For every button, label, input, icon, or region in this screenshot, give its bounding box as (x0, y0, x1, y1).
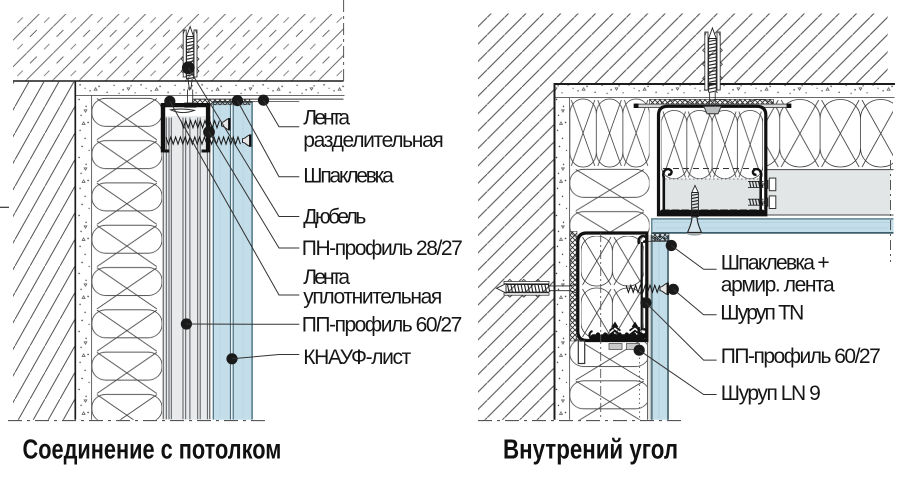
svg-text:ПП-профиль 60/27: ПП-профиль 60/27 (721, 345, 881, 368)
svg-text:Соединение с потолком: Соединение с потолком (23, 434, 282, 465)
svg-text:ПН-профиль 28/27: ПН-профиль 28/27 (302, 237, 463, 260)
svg-text:Шпаклевка +: Шпаклевка + (721, 252, 830, 275)
svg-text:разделительная: разделительная (303, 129, 444, 152)
svg-text:КНАУФ-лист: КНАУФ-лист (303, 346, 411, 369)
svg-text:Шпаклевка: Шпаклевка (303, 165, 394, 188)
svg-text:армир. лента: армир. лента (721, 274, 835, 297)
svg-text:уплотнительная: уплотнительная (303, 286, 442, 309)
svg-text:Шуруп LN 9: Шуруп LN 9 (721, 382, 821, 405)
svg-text:ПП-профиль 60/27: ПП-профиль 60/27 (302, 314, 463, 337)
svg-text:Лента: Лента (303, 107, 350, 130)
svg-text:Дюбель: Дюбель (303, 206, 366, 229)
svg-text:Шуруп TN: Шуруп TN (720, 302, 804, 325)
svg-text:Внутрений угол: Внутрений угол (503, 434, 678, 465)
